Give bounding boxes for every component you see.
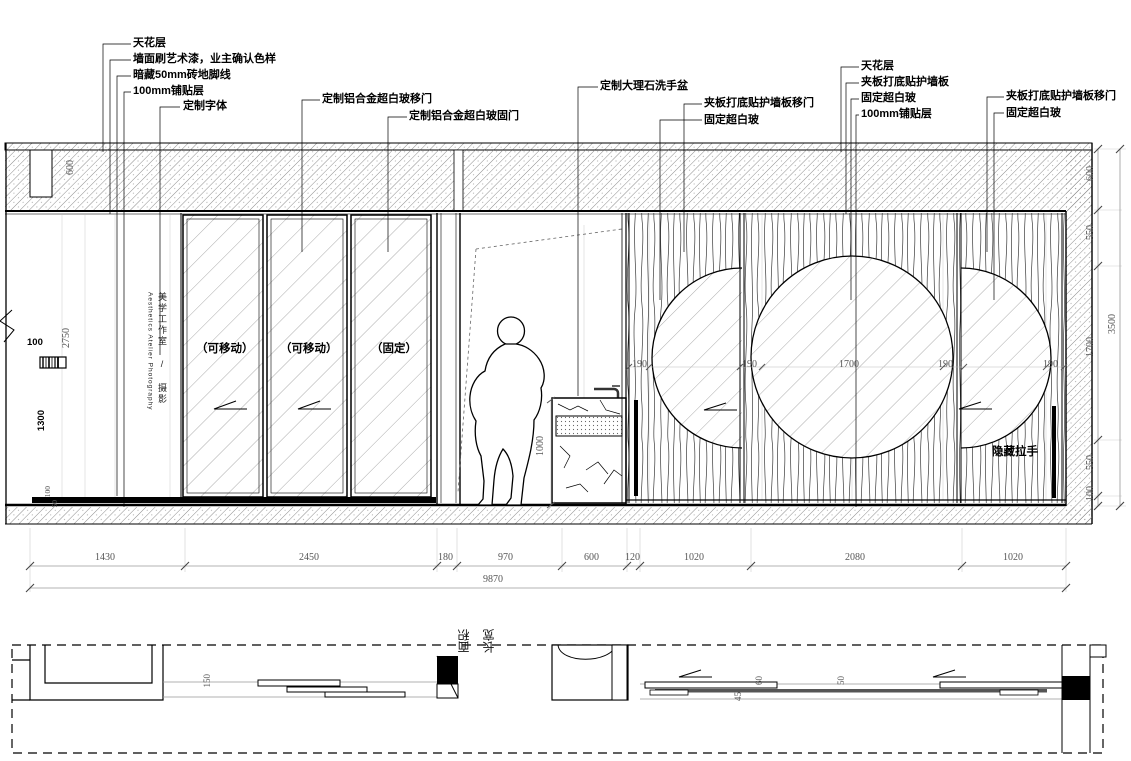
annotation-label: 100mm铺贴层 bbox=[861, 109, 932, 120]
annotation-label: 定制铝合金超白玻固门 bbox=[409, 111, 519, 122]
studio-name-cjk: 美学工作室 / 摄影 bbox=[157, 292, 166, 472]
dim-basin-height: 1000 bbox=[536, 436, 546, 456]
annotation-label: 暗藏50mm砖地脚线 bbox=[133, 70, 231, 81]
dim-value: 120 bbox=[625, 553, 640, 563]
dim-value: 1430 bbox=[95, 553, 115, 563]
dim-value: 2450 bbox=[299, 553, 319, 563]
person-figure bbox=[470, 317, 544, 505]
dim-value: 600 bbox=[1086, 166, 1096, 181]
studio-name-en: Aesthetics Atelier Photography bbox=[146, 292, 153, 482]
door-state-label: （固定） bbox=[371, 344, 417, 356]
annotation-label: 定制字体 bbox=[183, 101, 227, 112]
dim-value: 190 bbox=[632, 360, 647, 370]
mirror-circle-center bbox=[751, 256, 953, 458]
annotation-label: 100mm铺贴层 bbox=[133, 86, 204, 97]
hidden-handle-groove bbox=[634, 400, 638, 496]
bottom-dimension-chain bbox=[26, 528, 1070, 592]
dim-value: 550 bbox=[1086, 225, 1096, 240]
glass-doors bbox=[32, 215, 436, 503]
wall-pier bbox=[437, 213, 460, 505]
dim-value: 1700 bbox=[839, 360, 859, 370]
dim-total: 9870 bbox=[483, 575, 503, 585]
dim-value: 1700 bbox=[1086, 337, 1096, 357]
dim-value: 1020 bbox=[1003, 553, 1023, 563]
dim-logo-width: 100 bbox=[27, 338, 43, 348]
door-track bbox=[32, 497, 436, 503]
dim-floor: 100 bbox=[44, 486, 52, 497]
annotation-label: 定制大理石洗手盆 bbox=[600, 81, 688, 92]
annotation-label: 天花层 bbox=[133, 38, 166, 49]
plan-title-label: 长宽 bbox=[483, 629, 495, 653]
dim-logo-height: 1300 bbox=[37, 410, 47, 431]
dim-value: 1020 bbox=[684, 553, 704, 563]
plan-right-track bbox=[640, 670, 1072, 699]
plan-title-label: 面积 bbox=[458, 629, 470, 653]
dim-value: 60 bbox=[755, 676, 764, 685]
door-state-label: （可移动） bbox=[196, 344, 254, 356]
cad-elevation-sheet: 天花层 墙面刷艺术漆，业主确认色样 暗藏50mm砖地脚线 100mm铺贴层 定制… bbox=[0, 0, 1131, 761]
dim-value: 190 bbox=[742, 360, 757, 370]
door-state-label: （可移动） bbox=[280, 344, 338, 356]
plan-pier-block bbox=[437, 656, 458, 698]
dim-value: 190 bbox=[1043, 360, 1058, 370]
wood-panels bbox=[626, 213, 1066, 503]
dim-value: 45 bbox=[734, 692, 743, 701]
annotation-label: 固定超白玻 bbox=[704, 115, 759, 126]
dim-floor: 50 bbox=[51, 500, 59, 508]
dim-value: 180 bbox=[438, 553, 453, 563]
plan-view bbox=[12, 645, 1106, 753]
annotation-label: 墙面刷艺术漆，业主确认色样 bbox=[133, 54, 276, 65]
annotation-label: 夹板打底贴护墙板移门 bbox=[704, 98, 814, 109]
annotation-label: 夹板打底贴护墙板 bbox=[861, 77, 949, 88]
dim-value: 970 bbox=[498, 553, 513, 563]
annotation-label: 夹板打底贴护墙板移门 bbox=[1006, 91, 1116, 102]
dim-value: 600 bbox=[584, 553, 599, 563]
logo-barcode bbox=[40, 357, 66, 368]
annotation-label: 固定超白玻 bbox=[1006, 108, 1061, 119]
annotation-label: 定制铝合金超白玻移门 bbox=[322, 94, 432, 105]
dim-value: 2080 bbox=[845, 553, 865, 563]
dim-wall-height: 2750 bbox=[62, 328, 72, 348]
floor-structure bbox=[5, 505, 1092, 524]
dim-value: 150 bbox=[203, 674, 212, 688]
dim-ceiling-height: 600 bbox=[66, 160, 76, 175]
wall-break-symbol bbox=[0, 310, 14, 342]
plan-washbasin bbox=[552, 645, 628, 700]
annotation-label: 天花层 bbox=[861, 61, 894, 72]
dim-value: 190 bbox=[938, 360, 953, 370]
dim-total: 3500 bbox=[1108, 314, 1118, 334]
drawing-linework bbox=[0, 0, 1131, 761]
dim-value: 550 bbox=[1086, 455, 1096, 470]
ceiling-structure bbox=[5, 143, 1092, 214]
plan-right-wall bbox=[1062, 645, 1106, 753]
dim-value: 50 bbox=[837, 676, 846, 685]
hidden-handle-groove bbox=[1052, 406, 1056, 498]
annotation-label: 固定超白玻 bbox=[861, 93, 916, 104]
dim-value: 100 bbox=[1086, 486, 1096, 501]
hidden-handle-label: 隐藏拉手 bbox=[992, 447, 1038, 459]
plan-left-wall bbox=[12, 645, 163, 700]
washbasin bbox=[552, 386, 626, 503]
